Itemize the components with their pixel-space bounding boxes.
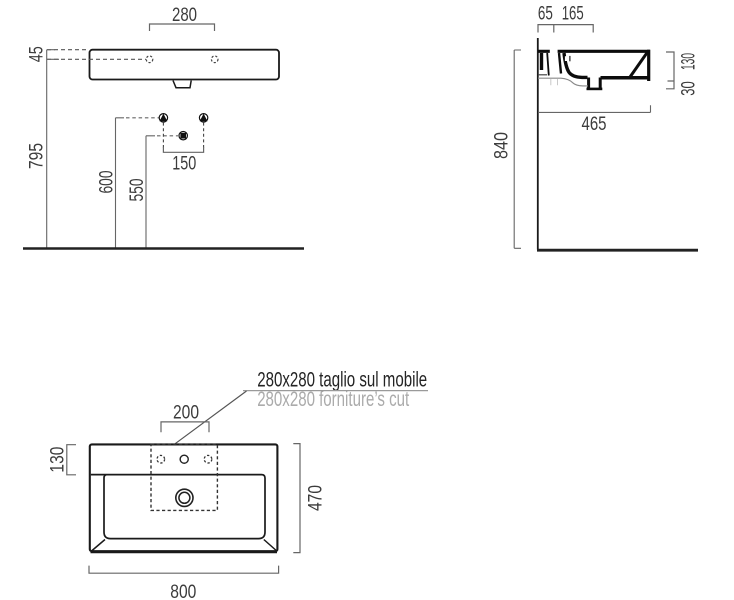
svg-text:465: 465 (582, 114, 607, 135)
svg-text:30: 30 (679, 81, 700, 96)
svg-text:470: 470 (306, 485, 327, 511)
svg-text:45: 45 (27, 46, 48, 62)
svg-text:130: 130 (679, 53, 700, 70)
svg-text:800: 800 (170, 582, 196, 600)
svg-text:65: 65 (538, 4, 553, 25)
svg-text:165: 165 (562, 4, 584, 25)
svg-text:280: 280 (172, 5, 197, 26)
svg-text:200: 200 (173, 403, 199, 424)
svg-text:130: 130 (47, 447, 68, 473)
svg-text:280x280 forniture’s cut: 280x280 forniture’s cut (257, 388, 409, 411)
svg-text:550: 550 (127, 179, 148, 202)
svg-text:600: 600 (97, 171, 118, 194)
svg-text:150: 150 (172, 153, 196, 174)
svg-text:840: 840 (492, 132, 513, 159)
svg-text:795: 795 (27, 143, 48, 169)
